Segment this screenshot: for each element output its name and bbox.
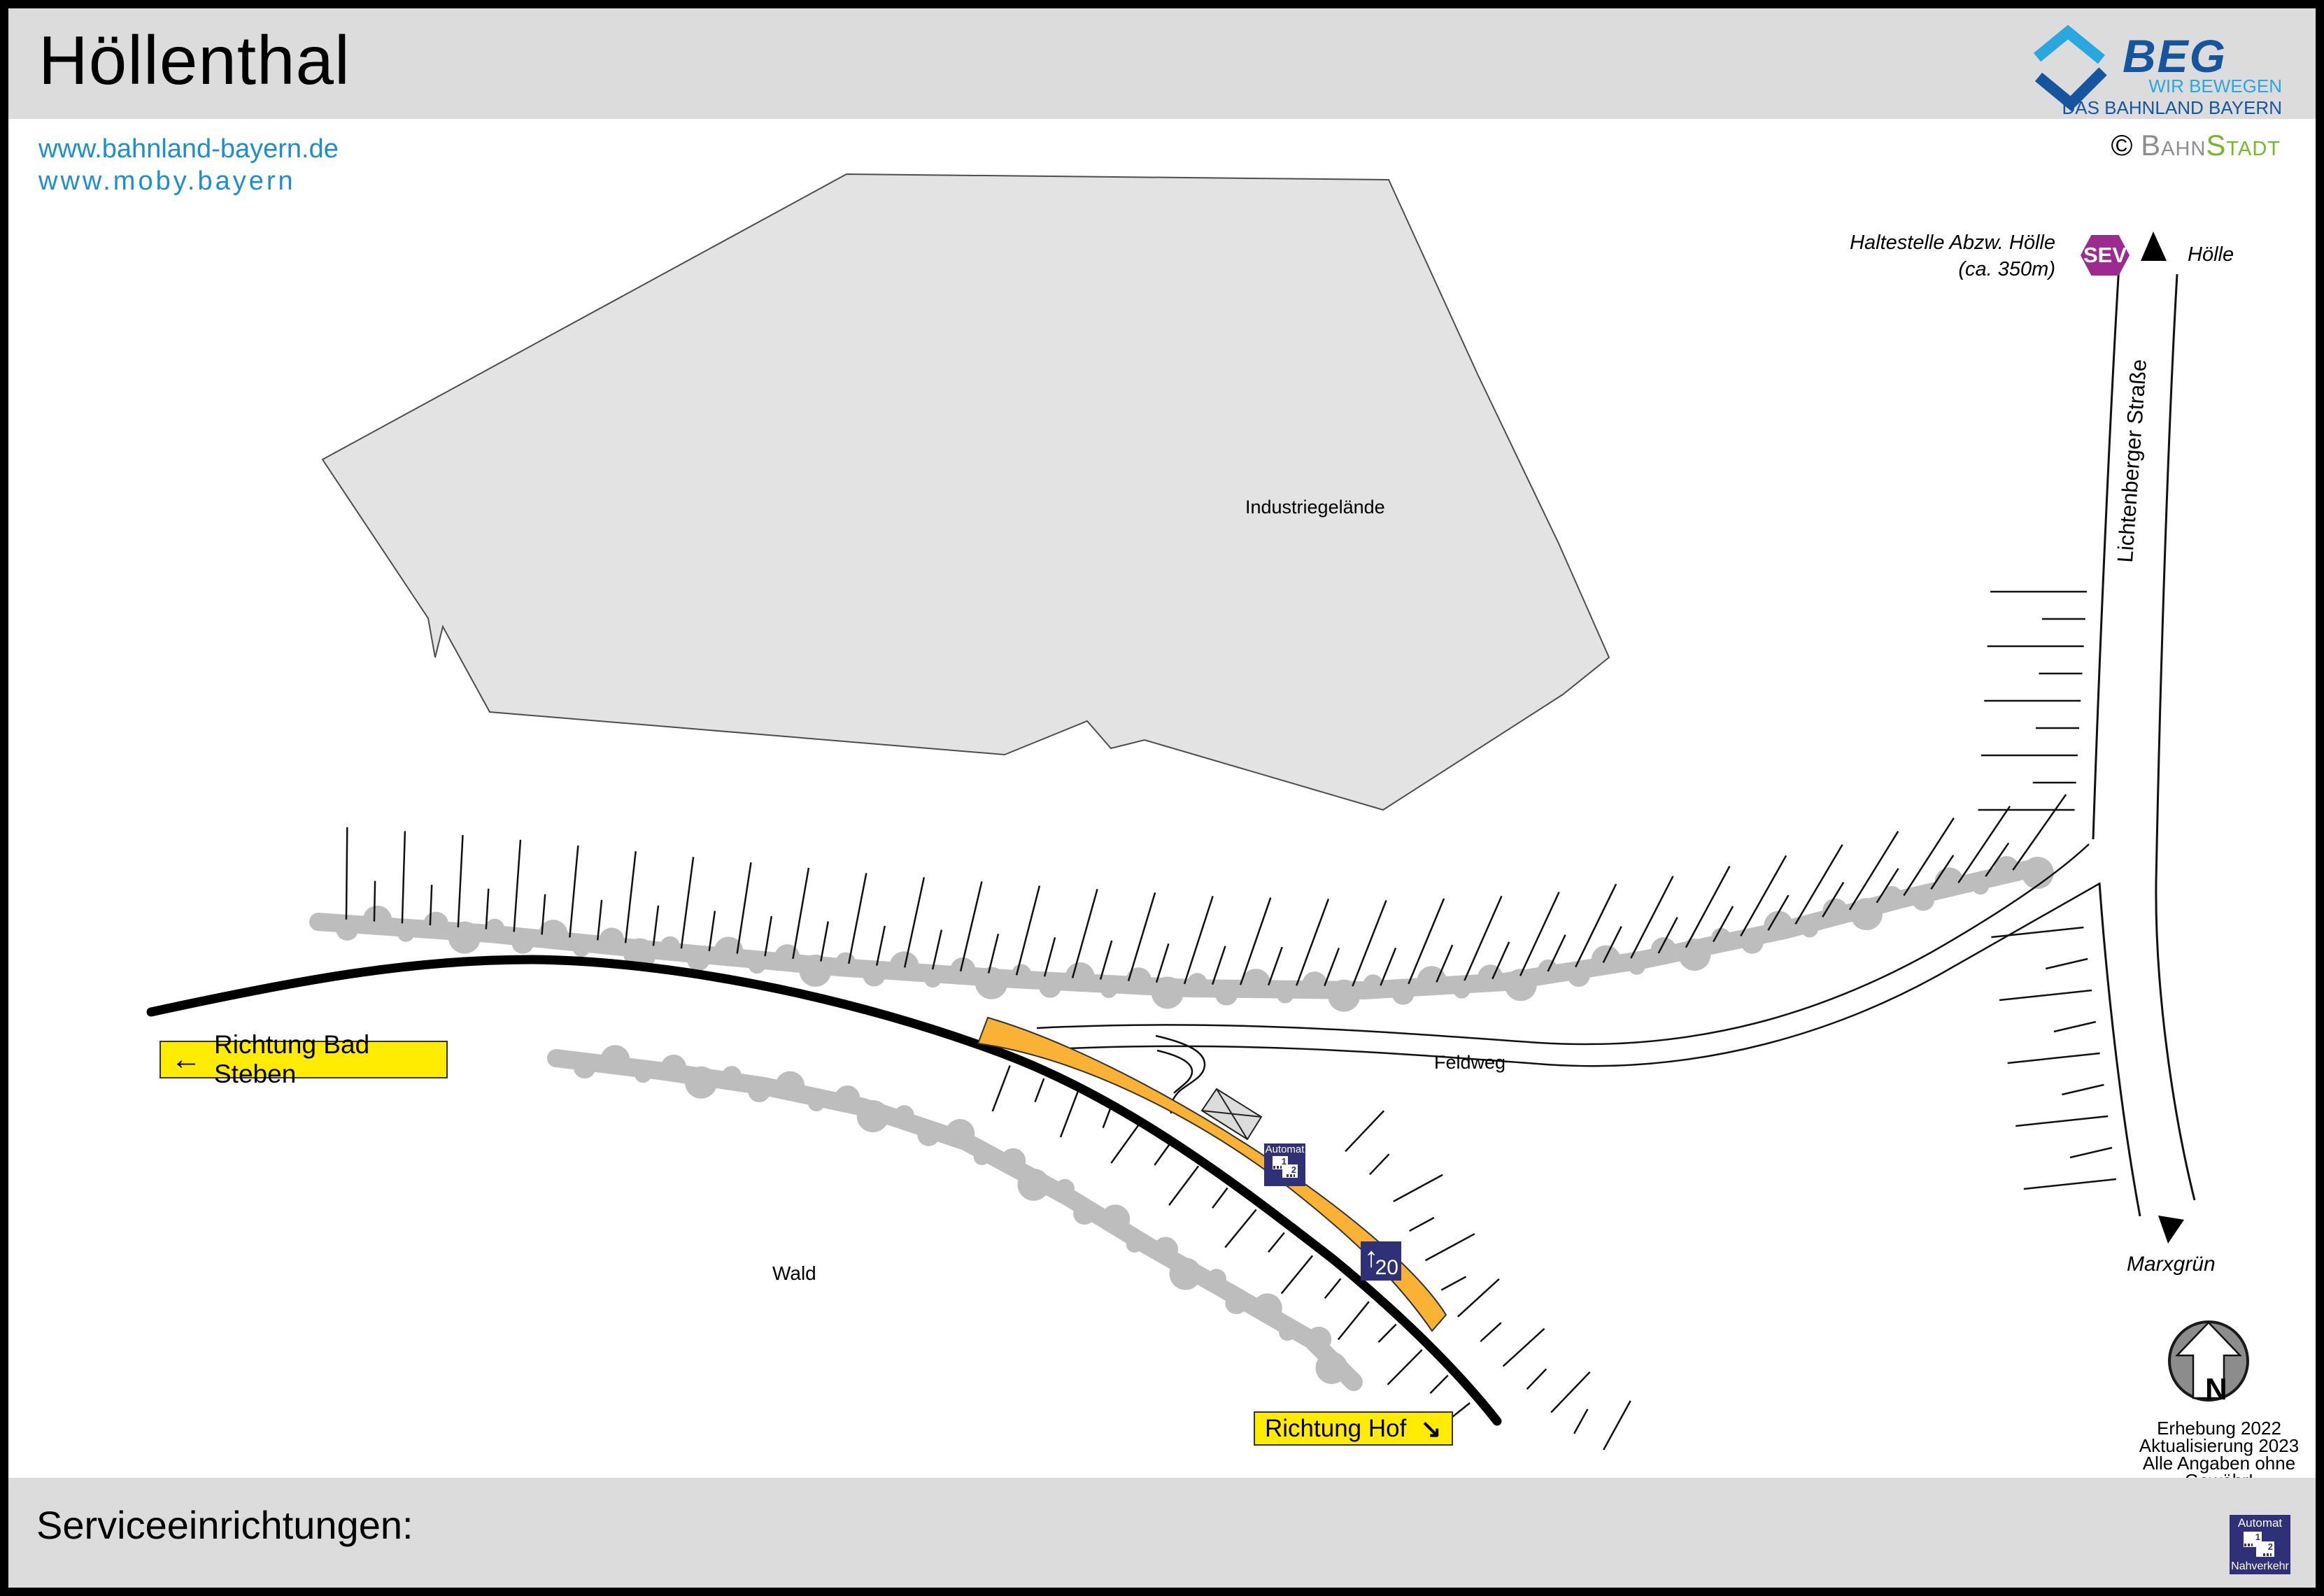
sev-stop-note-line1: Haltestelle Abzw. Hölle	[1850, 229, 2055, 256]
down-right-arrow-icon: ↘	[1420, 1416, 1441, 1441]
ticket-2-number: 2	[1291, 1164, 1296, 1175]
direction-marxgruen-label: Marxgrün	[2127, 1253, 2216, 1276]
ticket-2-icon: 2	[2256, 1541, 2274, 1557]
industrial-area-shape	[323, 174, 1609, 810]
legend-icon-title: Automat	[2230, 1516, 2290, 1530]
compass-letter: N	[2205, 1372, 2227, 1407]
sev-stop-note: Haltestelle Abzw. Hölle (ca. 350m)	[1850, 229, 2055, 283]
direction-hoelle-label: Hölle	[2188, 243, 2234, 266]
ticket-2-icon: 2	[1282, 1164, 1298, 1178]
legend-icon-subtitle: Nahverkehr	[2230, 1560, 2290, 1573]
ticket-machine-map-icon: Automat 1 2	[1264, 1143, 1305, 1186]
industrial-area-label: Industriegelände	[1245, 497, 1385, 518]
services-heading: Serviceeinrichtungen:	[36, 1502, 413, 1548]
ticket-dots	[2263, 1553, 2272, 1556]
direction-hof-label: Richtung Hof	[1265, 1415, 1406, 1443]
ticket-1-number: 1	[2255, 1532, 2260, 1542]
ticket-dots	[1287, 1174, 1295, 1177]
sev-stop-note-line2: (ca. 350m)	[1850, 256, 2055, 283]
ticket-2-number: 2	[2268, 1541, 2273, 1552]
feldweg-label: Feldweg	[1434, 1052, 1505, 1074]
ticket-dots	[2244, 1544, 2253, 1546]
wald-label: Wald	[772, 1262, 816, 1285]
left-arrow-icon: ←	[171, 1044, 201, 1075]
platform-20-sign: ↑ 20	[1361, 1241, 1401, 1281]
direction-bad-steben-sign: ← Richtung Bad Steben	[160, 1041, 448, 1078]
direction-hof-sign: Richtung Hof ↘	[1254, 1411, 1453, 1446]
ticket-dots	[1273, 1166, 1282, 1169]
marxgruen-arrow-icon	[2158, 1216, 2184, 1244]
hoelle-arrow-icon	[2141, 231, 2167, 261]
ticket-machine-map-title: Automat	[1264, 1143, 1305, 1155]
station-map-page: Höllenthal www.bahnland-bayern.de www.mo…	[0, 0, 2324, 1596]
platform-number: 20	[1375, 1256, 1398, 1280]
ticket-machine-legend-icon: Automat 1 2 Nahverkehr	[2230, 1515, 2290, 1574]
direction-bad-steben-label: Richtung Bad Steben	[214, 1030, 437, 1089]
